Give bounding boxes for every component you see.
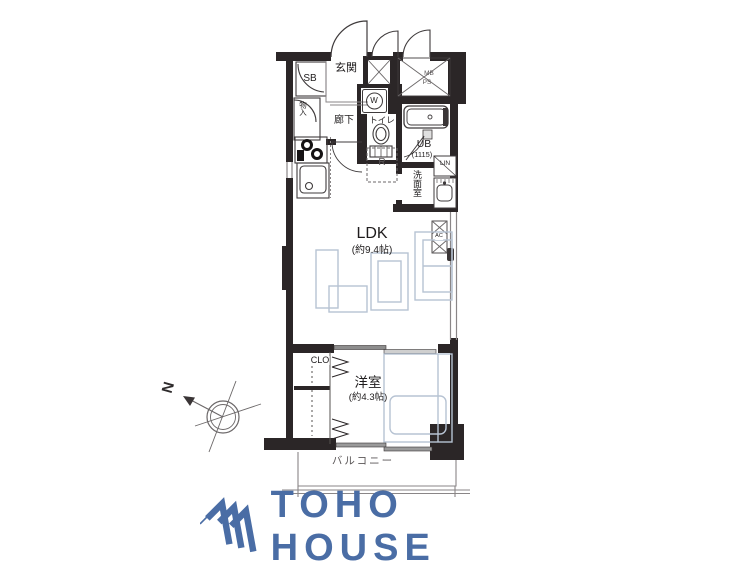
genkan-label: 玄関 xyxy=(335,63,357,74)
rouka-label: 廊下 xyxy=(334,116,354,126)
logo-band-1 xyxy=(207,504,229,544)
toho-house-logo-icon xyxy=(200,488,261,558)
tv-board xyxy=(316,250,338,308)
closet xyxy=(312,352,348,444)
yoshitsu-size-label: (約4.3帖) xyxy=(349,393,388,403)
entrance-door-arc xyxy=(331,21,367,57)
sliding-door-ldk-bedroom xyxy=(334,346,436,354)
toilet-label: トイレ xyxy=(369,116,395,125)
floorplan-page: 玄関 SB 物入 W MB PS 廊下 トイレ UB (1115) 洗面室 LI… xyxy=(0,0,750,563)
yoshitsu-label: 洋室 xyxy=(355,376,382,390)
ps-label: PS xyxy=(423,80,432,87)
ldk-size-label: (約9.4帖) xyxy=(352,246,393,256)
compass xyxy=(183,381,261,452)
lin-label: LIN xyxy=(440,161,450,168)
mb-label: MB xyxy=(424,71,434,78)
washbasin xyxy=(434,178,456,208)
senmenshitsu-label: 洗面室 xyxy=(412,170,421,197)
balcony-sliding-door xyxy=(336,443,432,451)
left-window xyxy=(287,162,292,178)
balcony-label: バルコニー xyxy=(332,456,394,467)
ub-size-label: (1115) xyxy=(412,151,433,159)
monoire-label: 物入 xyxy=(299,101,307,116)
toho-house-logo: TOHO HOUSE xyxy=(200,488,560,558)
refrigerator-label: R xyxy=(378,158,385,168)
washer-label: W xyxy=(370,97,378,105)
ub-label: UB xyxy=(417,139,432,150)
bathtub xyxy=(404,106,448,128)
ldk-label: LDK xyxy=(356,226,387,242)
clo-label: CLO xyxy=(311,356,330,365)
table-inner xyxy=(378,261,401,302)
kitchen-stove xyxy=(295,137,327,163)
ac-label: AC xyxy=(435,234,443,240)
sb-label: SB xyxy=(303,74,316,84)
window-latch xyxy=(447,248,454,261)
floorplan-drawing xyxy=(0,0,750,563)
logo-text: TOHO HOUSE xyxy=(271,484,560,563)
kitchen-sink xyxy=(297,163,329,198)
